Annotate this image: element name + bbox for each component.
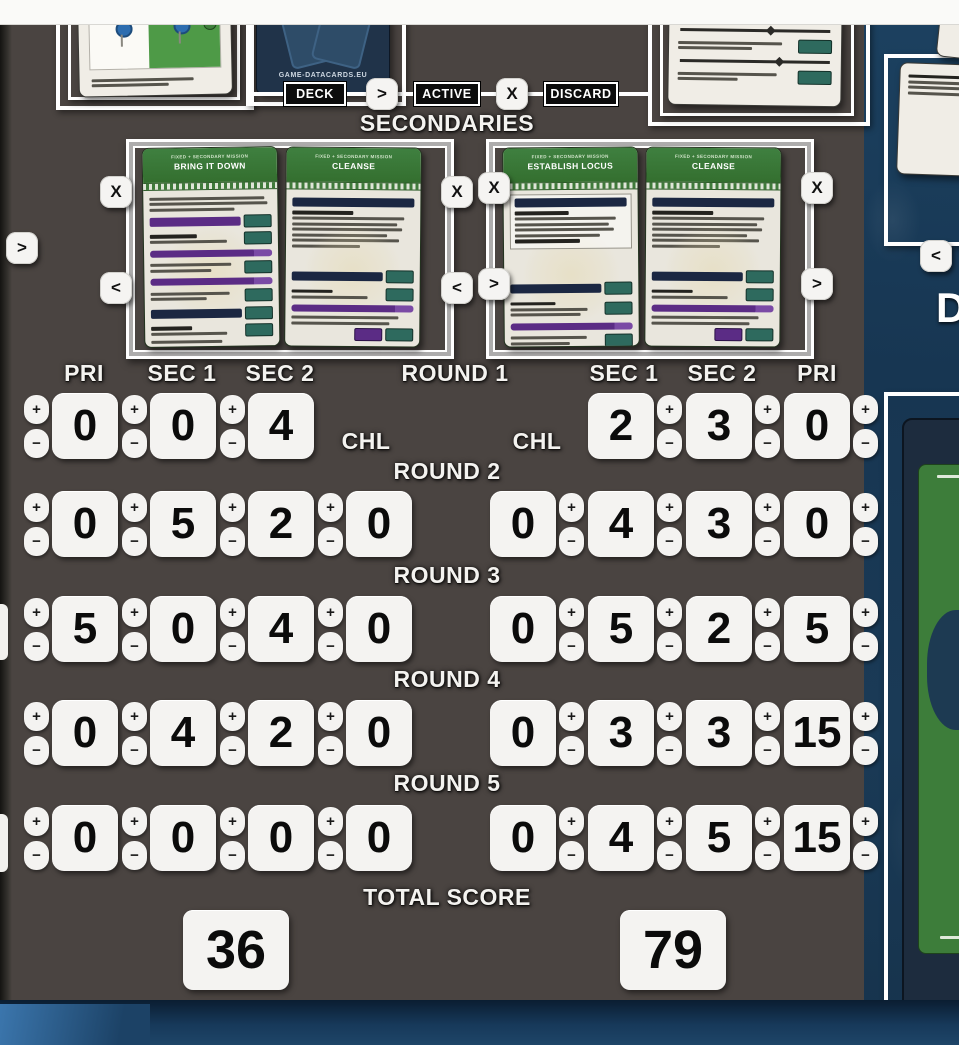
round-5-label: ROUND 5 (347, 770, 547, 797)
vp-badge (798, 40, 832, 54)
vp-badge (244, 231, 272, 244)
decrement-button[interactable]: − (755, 429, 780, 458)
score-value[interactable]: 0 (150, 596, 216, 662)
slider-knob[interactable] (774, 57, 784, 67)
score-value[interactable]: 2 (248, 700, 314, 766)
score-counter: +−4 (220, 595, 314, 663)
score-value[interactable]: 0 (52, 491, 118, 557)
score-value[interactable]: 3 (686, 700, 752, 766)
score-value[interactable]: 4 (588, 805, 654, 871)
decrement-button[interactable]: − (657, 841, 682, 870)
tabletop-score-board: GAME-DATACARDS.EU (0, 0, 959, 1045)
score-value[interactable]: 0 (784, 491, 850, 557)
score-counter: +−4 (220, 392, 314, 460)
score-slider (680, 28, 830, 33)
discard-x-button[interactable]: X (496, 78, 528, 110)
increment-button[interactable]: + (657, 598, 682, 627)
card-text-skeleton (285, 189, 420, 347)
score-value[interactable]: 0 (248, 805, 314, 871)
score-counter: +−2 (220, 699, 314, 767)
vp-badge (714, 328, 742, 341)
increment-button[interactable]: + (122, 807, 147, 836)
decrement-button[interactable]: − (318, 841, 343, 870)
card-type-line: FIXED + SECONDARY MISSION (287, 147, 421, 159)
increment-button[interactable]: + (559, 493, 584, 522)
remove-card-button[interactable]: X (441, 176, 473, 208)
neighbor-rules-card (896, 62, 959, 178)
increment-button[interactable]: + (853, 807, 878, 836)
decrement-button[interactable]: − (657, 429, 682, 458)
marker-stem (121, 35, 123, 47)
round-4-label: ROUND 4 (347, 666, 547, 693)
discard-zone-label: DISCARD (544, 82, 618, 106)
score-value[interactable]: 3 (686, 491, 752, 557)
decrement-button[interactable]: − (755, 736, 780, 765)
vp-badge (386, 270, 414, 283)
draw-next-button[interactable]: > (366, 78, 398, 110)
neighbor-counter-sliver (0, 814, 8, 872)
col-header-sec1-right: SEC 1 (574, 360, 674, 387)
decrement-button[interactable]: − (755, 527, 780, 556)
score-value[interactable]: 4 (248, 596, 314, 662)
decrement-button[interactable]: − (853, 429, 878, 458)
score-value[interactable]: 0 (490, 596, 556, 662)
vp-badge (798, 71, 832, 85)
decrement-button[interactable]: − (755, 632, 780, 661)
score-counter: 15+− (784, 699, 878, 767)
score-value[interactable]: 3 (686, 393, 752, 459)
progress-bar (150, 249, 272, 258)
total-score-left[interactable]: 36 (183, 910, 289, 990)
cycle-back-button[interactable]: < (441, 272, 473, 304)
cycle-forward-button[interactable]: > (6, 232, 38, 264)
score-value[interactable]: 0 (346, 805, 412, 871)
score-counter: +−0 (24, 699, 118, 767)
vp-badge (385, 328, 413, 341)
score-counter: +−0 (220, 804, 314, 872)
increment-button[interactable]: + (559, 598, 584, 627)
neighbor-counter-sliver (0, 604, 8, 660)
score-counter: 2+− (588, 392, 682, 460)
score-slider (680, 59, 830, 64)
col-header-sec2-left: SEC 2 (230, 360, 330, 387)
col-header-pri-left: PRI (44, 360, 124, 387)
vp-badge (244, 260, 272, 273)
increment-button[interactable]: + (853, 395, 878, 424)
decrement-button[interactable]: − (853, 841, 878, 870)
score-counter: 0+− (784, 392, 878, 460)
decrement-button[interactable]: − (853, 527, 878, 556)
score-value[interactable]: 0 (490, 700, 556, 766)
score-value[interactable]: 4 (150, 700, 216, 766)
score-counter: +−0 (318, 490, 412, 558)
score-counter: +−0 (122, 392, 216, 460)
decrement-button[interactable]: − (657, 527, 682, 556)
decrement-button[interactable]: − (122, 632, 147, 661)
progress-bar (291, 304, 413, 312)
score-counter: 15+− (784, 804, 878, 872)
increment-button[interactable]: + (853, 598, 878, 627)
decrement-button[interactable]: − (220, 429, 245, 458)
neighbor-secondary-card (918, 464, 959, 954)
score-value[interactable]: 4 (588, 491, 654, 557)
score-value[interactable]: 15 (784, 805, 850, 871)
score-value[interactable]: 5 (784, 596, 850, 662)
score-value[interactable]: 0 (784, 393, 850, 459)
score-counter: 0+− (490, 490, 584, 558)
increment-button[interactable]: + (755, 702, 780, 731)
card-text-skeleton (143, 189, 279, 348)
decrement-button[interactable]: − (559, 841, 584, 870)
decrement-button[interactable]: − (559, 632, 584, 661)
score-value[interactable]: 5 (150, 491, 216, 557)
card-type-line: FIXED + SECONDARY MISSION (503, 147, 637, 159)
decrement-button[interactable]: − (755, 841, 780, 870)
card-title: ESTABLISH LOCUS (503, 160, 637, 171)
increment-button[interactable]: + (318, 493, 343, 522)
score-value[interactable]: 0 (346, 700, 412, 766)
vp-badge (604, 302, 632, 315)
increment-button[interactable]: + (755, 598, 780, 627)
score-counter: 0+− (490, 595, 584, 663)
score-counter: +−4 (122, 699, 216, 767)
deck-zone-label: DECK (284, 82, 346, 106)
decrement-button[interactable]: − (122, 429, 147, 458)
increment-button[interactable]: + (24, 807, 49, 836)
secondary-card-bring-it-down[interactable]: FIXED + SECONDARY MISSION BRING IT DOWN (142, 146, 281, 348)
round-3-label: ROUND 3 (347, 562, 547, 589)
score-counter: 2+− (686, 595, 780, 663)
score-counter: 0+− (784, 490, 878, 558)
cycle-forward-button[interactable]: > (801, 268, 833, 300)
score-counter: 5+− (784, 595, 878, 663)
brand-label: GAME-DATACARDS.EU (257, 72, 389, 79)
increment-button[interactable]: + (24, 395, 49, 424)
card-title: CLEANSE (647, 161, 781, 172)
active-zone-label: ACTIVE (414, 82, 480, 106)
decrement-button[interactable]: − (122, 527, 147, 556)
score-counter: 4+− (588, 804, 682, 872)
progress-bar (150, 277, 272, 286)
score-value[interactable]: 0 (150, 393, 216, 459)
decrement-button[interactable]: − (122, 841, 147, 870)
increment-button[interactable]: + (853, 702, 878, 731)
score-counter: 5+− (588, 595, 682, 663)
decrement-button[interactable]: − (657, 632, 682, 661)
increment-button[interactable]: + (24, 598, 49, 627)
cycle-back-button[interactable]: < (920, 240, 952, 272)
score-counter: 3+− (588, 699, 682, 767)
decrement-button[interactable]: − (318, 736, 343, 765)
decrement-button[interactable]: − (853, 632, 878, 661)
increment-button[interactable]: + (559, 807, 584, 836)
remove-card-button[interactable]: X (801, 172, 833, 204)
card-text-skeleton (504, 189, 639, 347)
increment-button[interactable]: + (318, 598, 343, 627)
increment-button[interactable]: + (24, 493, 49, 522)
decrement-button[interactable]: − (24, 429, 49, 458)
score-value[interactable]: 5 (686, 805, 752, 871)
increment-button[interactable]: + (657, 702, 682, 731)
score-value[interactable]: 0 (52, 393, 118, 459)
decrement-button[interactable]: − (122, 736, 147, 765)
increment-button[interactable]: + (122, 598, 147, 627)
score-value[interactable]: 0 (346, 596, 412, 662)
decrement-button[interactable]: − (220, 632, 245, 661)
score-counter: +−0 (24, 804, 118, 872)
increment-button[interactable]: + (24, 702, 49, 731)
vp-badge (245, 288, 273, 301)
score-value[interactable]: 4 (248, 393, 314, 459)
secondaries-title: SECONDARIES (297, 110, 597, 137)
decrement-button[interactable]: − (220, 527, 245, 556)
decrement-button[interactable]: − (220, 841, 245, 870)
secondary-card-cleanse[interactable]: FIXED + SECONDARY MISSION CLEANSE (284, 146, 422, 347)
score-counter: 5+− (686, 804, 780, 872)
vp-badge (604, 281, 632, 294)
decrement-button[interactable]: − (559, 527, 584, 556)
increment-button[interactable]: + (220, 702, 245, 731)
vp-badge (746, 270, 774, 283)
vp-badge (245, 306, 273, 319)
increment-button[interactable]: + (559, 702, 584, 731)
increment-button[interactable]: + (318, 807, 343, 836)
score-value[interactable]: 15 (784, 700, 850, 766)
score-value[interactable]: 0 (52, 805, 118, 871)
score-counter: +−0 (24, 490, 118, 558)
cycle-back-button[interactable]: < (100, 272, 132, 304)
score-counter: +−2 (220, 490, 314, 558)
progress-bar (652, 305, 774, 313)
increment-button[interactable]: + (122, 493, 147, 522)
decrement-button[interactable]: − (318, 527, 343, 556)
total-score-right[interactable]: 79 (620, 910, 726, 990)
score-value[interactable]: 5 (52, 596, 118, 662)
score-value[interactable]: 0 (490, 491, 556, 557)
col-header-pri-right: PRI (777, 360, 857, 387)
score-counter: 3+− (686, 699, 780, 767)
score-counter: 0+− (490, 699, 584, 767)
card-type-line: FIXED + SECONDARY MISSION (143, 147, 277, 160)
remove-card-button[interactable]: X (100, 176, 132, 208)
chl-label-left: CHL (316, 428, 416, 455)
screenshot-top-band (0, 0, 959, 25)
increment-button[interactable]: + (122, 702, 147, 731)
score-counter: +−0 (122, 595, 216, 663)
increment-button[interactable]: + (657, 493, 682, 522)
score-value[interactable]: 0 (490, 805, 556, 871)
vp-badge (745, 328, 773, 341)
total-score-label: TOTAL SCORE (297, 884, 597, 911)
score-counter: +−0 (318, 595, 412, 663)
score-counter: +−0 (24, 392, 118, 460)
decrement-button[interactable]: − (657, 736, 682, 765)
score-value[interactable]: 2 (686, 596, 752, 662)
increment-button[interactable]: + (318, 702, 343, 731)
decrement-button[interactable]: − (24, 527, 49, 556)
progress-bar (511, 322, 633, 330)
increment-button[interactable]: + (220, 598, 245, 627)
vp-badge (746, 288, 774, 301)
vp-badge (386, 288, 414, 301)
round-1-label: ROUND 1 (355, 360, 555, 387)
card-text-skeleton (645, 190, 780, 348)
score-counter: 3+− (686, 490, 780, 558)
decrement-button[interactable]: − (24, 736, 49, 765)
increment-button[interactable]: + (657, 395, 682, 424)
increment-button[interactable]: + (220, 395, 245, 424)
cycle-forward-button[interactable]: > (478, 268, 510, 300)
card-type-line: FIXED + SECONDARY MISSION (647, 148, 781, 160)
vp-badge (354, 328, 382, 341)
increment-button[interactable]: + (220, 493, 245, 522)
marker-stem (179, 31, 181, 43)
score-counter: 3+− (686, 392, 780, 460)
score-counter: 4+− (588, 490, 682, 558)
chl-label-right: CHL (487, 428, 587, 455)
score-value[interactable]: 0 (52, 700, 118, 766)
decrement-button[interactable]: − (220, 736, 245, 765)
card-title: BRING IT DOWN (143, 160, 277, 172)
table-bottom-edge (0, 1000, 959, 1045)
neighbor-deck-letter: D (936, 284, 959, 332)
decrement-button[interactable]: − (318, 632, 343, 661)
round-2-label: ROUND 2 (347, 458, 547, 485)
score-value[interactable]: 2 (248, 491, 314, 557)
score-counter: +−5 (24, 595, 118, 663)
increment-button[interactable]: + (220, 807, 245, 836)
vp-badge (244, 214, 272, 227)
decrement-button[interactable]: − (24, 632, 49, 661)
faction-watermark (927, 610, 959, 730)
increment-button[interactable]: + (657, 807, 682, 836)
decrement-button[interactable]: − (24, 841, 49, 870)
col-header-sec2-right: SEC 2 (672, 360, 772, 387)
vp-badge (245, 323, 273, 336)
secondary-card-cleanse[interactable]: FIXED + SECONDARY MISSION CLEANSE (644, 147, 781, 348)
score-value[interactable]: 5 (588, 596, 654, 662)
score-counter: +−0 (318, 804, 412, 872)
card-title: CLEANSE (287, 160, 421, 171)
col-header-sec1-left: SEC 1 (132, 360, 232, 387)
score-counter: 0+− (490, 804, 584, 872)
score-counter: +−0 (318, 699, 412, 767)
increment-button[interactable]: + (755, 807, 780, 836)
increment-button[interactable]: + (755, 395, 780, 424)
score-value[interactable]: 2 (588, 393, 654, 459)
score-value[interactable]: 0 (346, 491, 412, 557)
decrement-button[interactable]: − (853, 736, 878, 765)
decrement-button[interactable]: − (559, 736, 584, 765)
remove-card-button[interactable]: X (478, 172, 510, 204)
slider-knob[interactable] (766, 26, 776, 36)
increment-button[interactable]: + (755, 493, 780, 522)
secondary-card-establish-locus[interactable]: FIXED + SECONDARY MISSION ESTABLISH LOCU… (502, 146, 640, 347)
score-value[interactable]: 0 (150, 805, 216, 871)
score-value[interactable]: 3 (588, 700, 654, 766)
vp-badge (605, 333, 633, 346)
increment-button[interactable]: + (122, 395, 147, 424)
score-counter: +−0 (122, 804, 216, 872)
score-counter: +−5 (122, 490, 216, 558)
increment-button[interactable]: + (853, 493, 878, 522)
